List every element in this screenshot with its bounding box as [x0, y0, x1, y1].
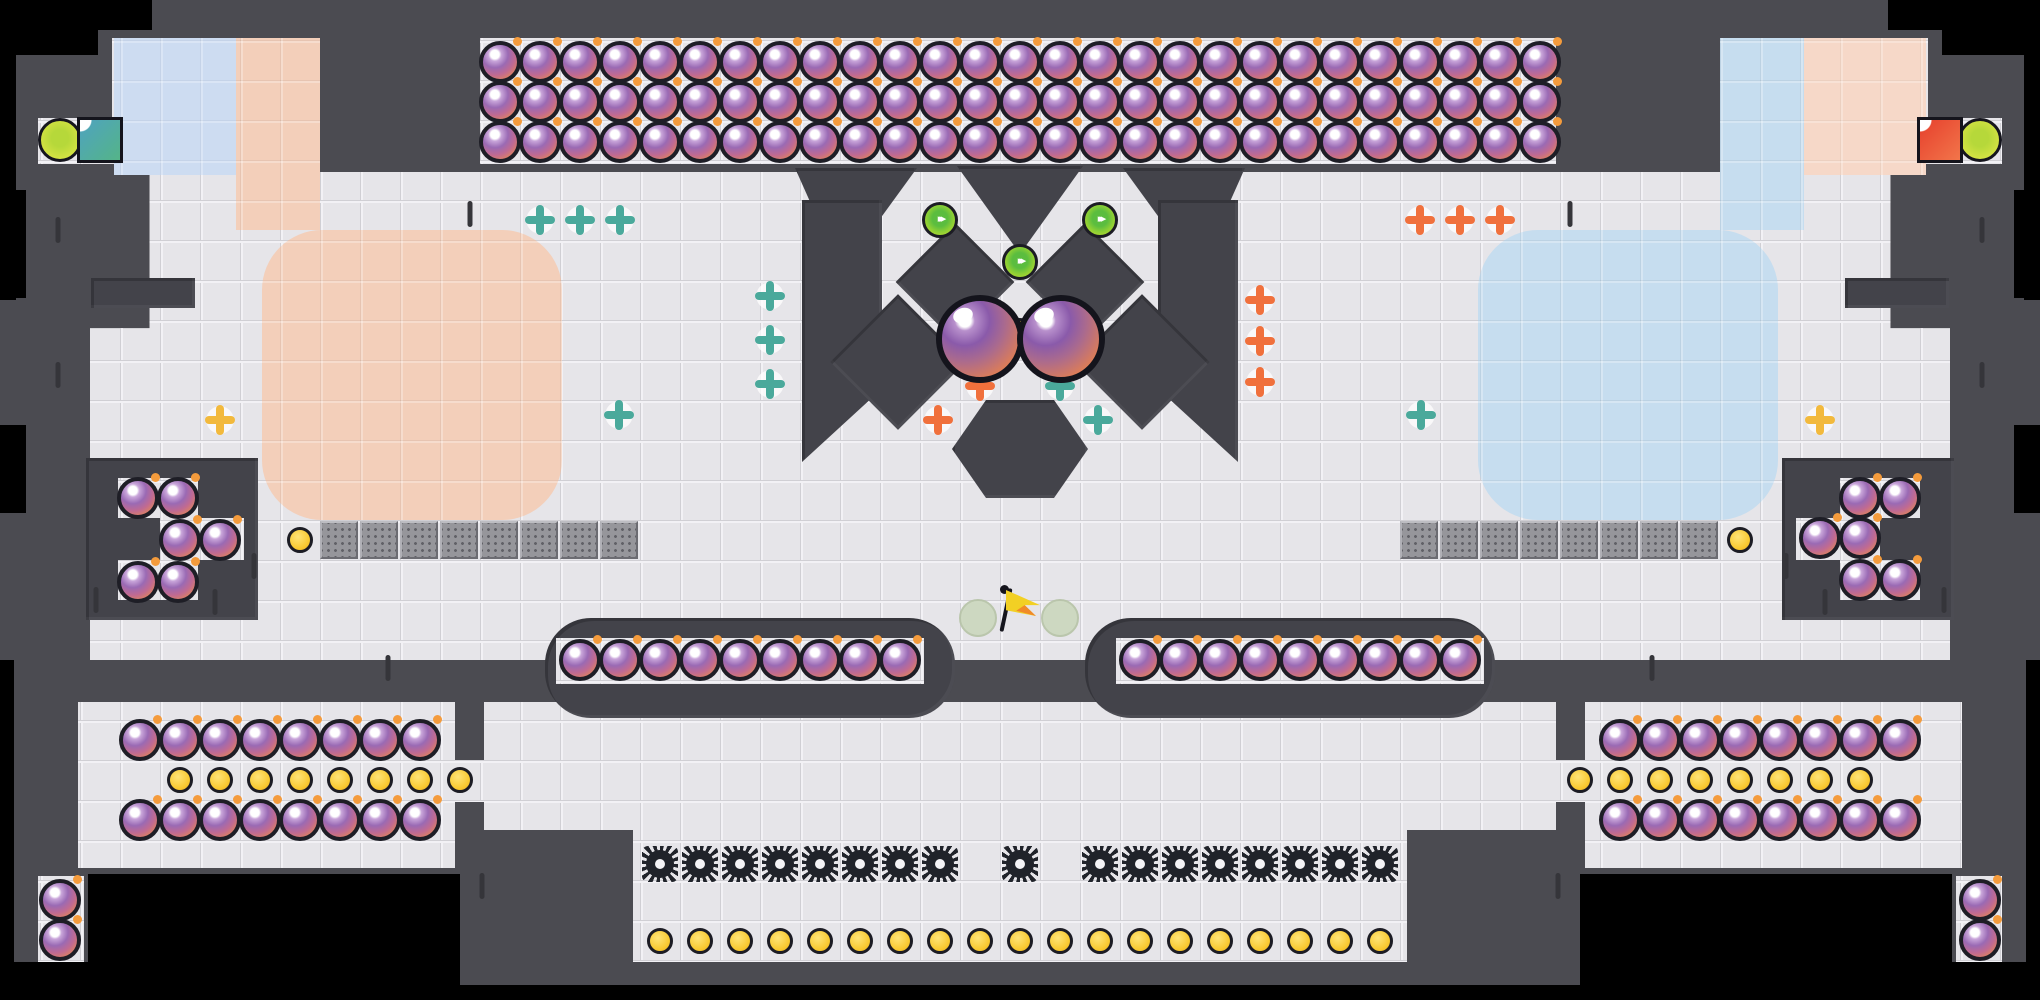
bomb[interactable]	[1759, 719, 1801, 761]
coin[interactable]	[887, 928, 913, 954]
bomb[interactable]	[719, 639, 761, 681]
bomb[interactable]	[1039, 121, 1081, 163]
conveyor-block	[1400, 521, 1438, 559]
saw-blade[interactable]	[1162, 846, 1198, 882]
bomb[interactable]	[1399, 639, 1441, 681]
void-cutout	[0, 985, 2040, 1000]
turret-teal[interactable]	[523, 203, 557, 237]
coin[interactable]	[1767, 767, 1793, 793]
coin[interactable]	[1007, 928, 1033, 954]
saw-blade[interactable]	[1362, 846, 1398, 882]
void-cutout	[0, 190, 26, 298]
conveyor-block	[1640, 521, 1678, 559]
conveyor-block	[1680, 521, 1718, 559]
saw-blade[interactable]	[682, 846, 718, 882]
bomb[interactable]	[1959, 919, 2001, 961]
saw-blade[interactable]	[922, 846, 958, 882]
coin[interactable]	[1647, 767, 1673, 793]
saw-blade[interactable]	[882, 846, 918, 882]
coin[interactable]	[367, 767, 393, 793]
bomb[interactable]	[117, 561, 159, 603]
turret-orange[interactable]	[1243, 283, 1277, 317]
conveyor-block	[1560, 521, 1598, 559]
bomb[interactable]	[559, 639, 601, 681]
conveyor-block	[1440, 521, 1478, 559]
void-cutout	[88, 874, 460, 1000]
wall-dash	[1980, 362, 1985, 388]
coin[interactable]	[287, 527, 313, 553]
turret-yellow[interactable]	[1803, 403, 1837, 437]
turret-orange[interactable]	[1243, 365, 1277, 399]
bomb[interactable]	[1839, 799, 1881, 841]
bomb[interactable]	[1879, 719, 1921, 761]
bomb[interactable]	[319, 719, 361, 761]
void-cutout	[2014, 425, 2040, 513]
bomb[interactable]	[1479, 121, 1521, 163]
wall-dash	[480, 873, 485, 899]
coin[interactable]	[1207, 928, 1233, 954]
turret-teal[interactable]	[602, 398, 636, 432]
turret-orange[interactable]	[1403, 203, 1437, 237]
ghost-circle	[959, 599, 997, 637]
coin[interactable]	[727, 928, 753, 954]
wall-block	[1845, 278, 1949, 308]
coin[interactable]	[967, 928, 993, 954]
goal-square-red[interactable]	[1917, 117, 1963, 163]
goal-square-teal[interactable]	[77, 117, 123, 163]
wall-dash	[56, 217, 61, 243]
conveyor-block	[360, 521, 398, 559]
bomb[interactable]	[1239, 639, 1281, 681]
bomb[interactable]	[1639, 719, 1681, 761]
bomb[interactable]	[1159, 121, 1201, 163]
bomb[interactable]	[1359, 121, 1401, 163]
wall-dash	[468, 201, 473, 227]
bomb[interactable]	[1839, 719, 1881, 761]
bomb[interactable]	[599, 639, 641, 681]
bomb[interactable]	[839, 639, 881, 681]
bomb[interactable]	[159, 719, 201, 761]
bomb[interactable]	[359, 719, 401, 761]
wall-dash	[1556, 873, 1561, 899]
bomb[interactable]	[919, 121, 961, 163]
coin[interactable]	[327, 767, 353, 793]
bomb[interactable]	[719, 121, 761, 163]
coin[interactable]	[207, 767, 233, 793]
green-bounce-orb[interactable]: ▸▸▸	[1002, 244, 1038, 280]
coin[interactable]	[167, 767, 193, 793]
coin[interactable]	[1167, 928, 1193, 954]
bomb[interactable]	[239, 719, 281, 761]
void-cutout	[2014, 190, 2040, 298]
bomb[interactable]	[799, 639, 841, 681]
turret-teal[interactable]	[1081, 403, 1115, 437]
green-bounce-orb[interactable]: ▸▸▸	[1082, 202, 1118, 238]
coin[interactable]	[1367, 928, 1393, 954]
wall-dash	[94, 587, 99, 613]
bomb[interactable]	[639, 639, 681, 681]
void-cutout	[0, 660, 14, 1000]
turret-yellow[interactable]	[203, 403, 237, 437]
bomb[interactable]	[1719, 799, 1761, 841]
bomb[interactable]	[599, 121, 641, 163]
bomb[interactable]	[1799, 719, 1841, 761]
saw-blade[interactable]	[1082, 846, 1118, 882]
bomb[interactable]	[1199, 121, 1241, 163]
turret-teal[interactable]	[753, 323, 787, 357]
bomb[interactable]	[157, 477, 199, 519]
conveyor-block	[600, 521, 638, 559]
bomb[interactable]	[519, 121, 561, 163]
saw-blade[interactable]	[642, 846, 678, 882]
bomb[interactable]	[959, 121, 1001, 163]
wall-dash	[1784, 553, 1789, 579]
void-cutout	[2026, 660, 2040, 1000]
bomb[interactable]	[119, 719, 161, 761]
conveyor-block	[1600, 521, 1638, 559]
coin[interactable]	[687, 928, 713, 954]
coin[interactable]	[287, 767, 313, 793]
bomb[interactable]	[1159, 639, 1201, 681]
saw-blade[interactable]	[1122, 846, 1158, 882]
pastel-tiles	[1478, 230, 1778, 520]
bomb[interactable]	[559, 121, 601, 163]
wall-dash	[1823, 589, 1828, 615]
coin[interactable]	[407, 767, 433, 793]
turret-orange[interactable]	[1243, 324, 1277, 358]
conveyor-block	[560, 521, 598, 559]
turret-teal[interactable]	[753, 367, 787, 401]
coin[interactable]	[1847, 767, 1873, 793]
conveyor-block	[480, 521, 518, 559]
saw-blade[interactable]	[802, 846, 838, 882]
player-orb[interactable]	[38, 118, 82, 162]
bomb[interactable]	[1519, 121, 1561, 163]
ghost-circle	[1041, 599, 1079, 637]
bomb[interactable]	[279, 799, 321, 841]
void-cutout	[1580, 874, 1952, 1000]
bomb[interactable]	[639, 121, 681, 163]
turret-orange[interactable]	[1483, 203, 1517, 237]
bomb[interactable]	[1199, 639, 1241, 681]
wall-dash	[213, 589, 218, 615]
bomb[interactable]	[1319, 639, 1361, 681]
checker-tiles	[114, 38, 238, 175]
bomb[interactable]	[199, 519, 241, 561]
bomb[interactable]	[679, 121, 721, 163]
wall-dash	[56, 362, 61, 388]
saw-blade[interactable]	[762, 846, 798, 882]
giant-orb[interactable]	[936, 295, 1024, 383]
bomb[interactable]	[759, 121, 801, 163]
bomb[interactable]	[1319, 121, 1361, 163]
saw-blade[interactable]	[1242, 846, 1278, 882]
coin[interactable]	[647, 928, 673, 954]
coin[interactable]	[1127, 928, 1153, 954]
coin[interactable]	[247, 767, 273, 793]
wall-dash	[1568, 201, 1573, 227]
saw-blade[interactable]	[1202, 846, 1238, 882]
saw-blade[interactable]	[1002, 846, 1038, 882]
coin[interactable]	[1087, 928, 1113, 954]
pastel-tiles	[1720, 38, 1804, 230]
wall-dash	[1980, 217, 1985, 243]
level-canvas: ▸▸▸▸▸▸▸▸▸	[0, 0, 2040, 1000]
bomb[interactable]	[1679, 799, 1721, 841]
bomb[interactable]	[1399, 121, 1441, 163]
turret-teal[interactable]	[753, 279, 787, 313]
bomb[interactable]	[1719, 719, 1761, 761]
bomb[interactable]	[1759, 799, 1801, 841]
wall-dash	[1942, 587, 1947, 613]
conveyor-block	[520, 521, 558, 559]
coin[interactable]	[927, 928, 953, 954]
bomb[interactable]	[199, 799, 241, 841]
saw-blade[interactable]	[722, 846, 758, 882]
bomb[interactable]	[1879, 477, 1921, 519]
bomb[interactable]	[1119, 121, 1161, 163]
bomb[interactable]	[999, 121, 1041, 163]
bomb[interactable]	[399, 799, 441, 841]
wall-dash	[386, 655, 391, 681]
bomb[interactable]	[119, 799, 161, 841]
bomb[interactable]	[839, 121, 881, 163]
bomb[interactable]	[759, 639, 801, 681]
bomb[interactable]	[1279, 639, 1321, 681]
coin[interactable]	[1567, 767, 1593, 793]
bomb[interactable]	[1679, 719, 1721, 761]
bomb[interactable]	[117, 477, 159, 519]
saw-blade[interactable]	[842, 846, 878, 882]
coin[interactable]	[1727, 527, 1753, 553]
bomb[interactable]	[157, 561, 199, 603]
bomb[interactable]	[1439, 639, 1481, 681]
saw-blade[interactable]	[1282, 846, 1318, 882]
bomb[interactable]	[1839, 517, 1881, 559]
bomb[interactable]	[399, 719, 441, 761]
bomb[interactable]	[1799, 799, 1841, 841]
conveyor-block	[1480, 521, 1518, 559]
conveyor-block	[320, 521, 358, 559]
bomb[interactable]	[1119, 639, 1161, 681]
bomb[interactable]	[279, 719, 321, 761]
bomb[interactable]	[1439, 121, 1481, 163]
saw-blade[interactable]	[1322, 846, 1358, 882]
green-bounce-orb[interactable]: ▸▸▸	[922, 202, 958, 238]
wall-dash	[1650, 655, 1655, 681]
conveyor-block	[440, 521, 478, 559]
coin[interactable]	[1727, 767, 1753, 793]
checker-tiles	[1802, 38, 1926, 175]
bomb[interactable]	[679, 639, 721, 681]
bomb[interactable]	[1639, 799, 1681, 841]
coin[interactable]	[1327, 928, 1353, 954]
bomb[interactable]	[319, 799, 361, 841]
coin[interactable]	[1047, 928, 1073, 954]
bomb[interactable]	[1279, 121, 1321, 163]
coin[interactable]	[1607, 767, 1633, 793]
turret-orange[interactable]	[921, 403, 955, 437]
bomb[interactable]	[879, 121, 921, 163]
bomb[interactable]	[799, 121, 841, 163]
bomb[interactable]	[39, 919, 81, 961]
bomb[interactable]	[1079, 121, 1121, 163]
player-orb[interactable]	[1958, 118, 2002, 162]
conveyor-block	[400, 521, 438, 559]
turret-teal[interactable]	[1404, 398, 1438, 432]
bomb[interactable]	[1879, 559, 1921, 601]
bomb[interactable]	[199, 719, 241, 761]
bomb[interactable]	[1599, 799, 1641, 841]
bomb[interactable]	[1359, 639, 1401, 681]
turret-teal[interactable]	[603, 203, 637, 237]
void-cutout	[0, 425, 26, 513]
pastel-tiles	[236, 38, 320, 230]
coin[interactable]	[1687, 767, 1713, 793]
bomb[interactable]	[159, 519, 201, 561]
wall-block	[91, 278, 195, 308]
pastel-tiles	[262, 230, 562, 520]
coin[interactable]	[767, 928, 793, 954]
bomb[interactable]	[1879, 799, 1921, 841]
bomb[interactable]	[1599, 719, 1641, 761]
bomb[interactable]	[1239, 121, 1281, 163]
coin[interactable]	[447, 767, 473, 793]
giant-orb[interactable]	[1017, 295, 1105, 383]
bomb[interactable]	[239, 799, 281, 841]
bomb[interactable]	[1839, 559, 1881, 601]
coin[interactable]	[1247, 928, 1273, 954]
conveyor-block	[1520, 521, 1558, 559]
bomb[interactable]	[359, 799, 401, 841]
floor-tiles	[484, 702, 1556, 830]
bomb[interactable]	[159, 799, 201, 841]
turret-orange[interactable]	[1443, 203, 1477, 237]
coin[interactable]	[1807, 767, 1833, 793]
coin[interactable]	[1287, 928, 1313, 954]
coin[interactable]	[807, 928, 833, 954]
coin[interactable]	[847, 928, 873, 954]
bomb[interactable]	[879, 639, 921, 681]
bomb[interactable]	[1799, 517, 1841, 559]
wall-dash	[252, 553, 257, 579]
checkpoint-flag[interactable]	[996, 585, 1044, 635]
bomb[interactable]	[479, 121, 521, 163]
turret-teal[interactable]	[563, 203, 597, 237]
